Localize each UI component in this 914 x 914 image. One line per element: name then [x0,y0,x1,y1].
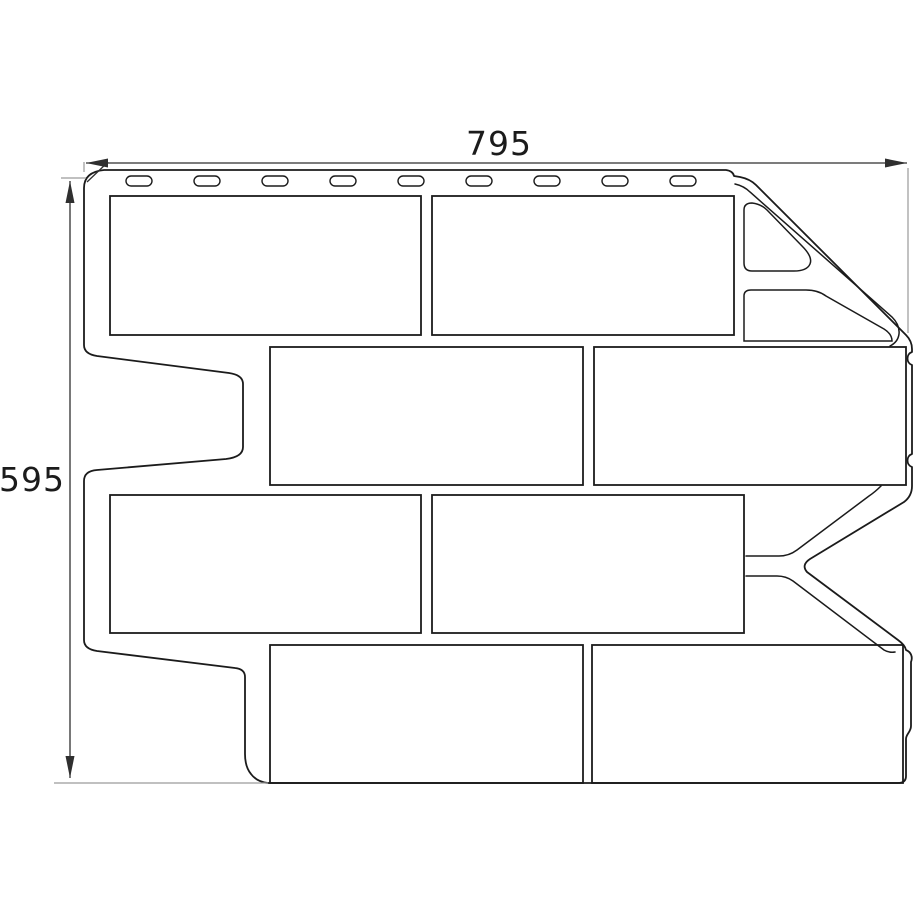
brick-row2-left [270,347,583,485]
nail-slot [330,176,356,186]
width-dimension-label: 795 [437,127,561,160]
width-arrow-right-icon [885,159,907,168]
brick-pattern [110,196,906,783]
brick-row3-right [432,495,744,633]
brick-row1-left [110,196,421,335]
nail-slot [670,176,696,186]
brick-row2-right [594,347,906,485]
nail-slot [398,176,424,186]
v-notch-lower-inner-edge [746,576,895,652]
width-dimension [84,159,908,334]
nail-slot [126,176,152,186]
top-right-cut [735,184,899,346]
height-arrow-down-icon [66,756,75,778]
width-arrow-left-icon [86,159,108,168]
brick-row4-right [592,645,903,783]
diagonal-inner-edge [735,184,899,346]
v-notch-upper-inner-edge [746,486,881,556]
panel-outer-contour [84,170,912,783]
height-arrow-up-icon [66,181,75,203]
nail-slot [466,176,492,186]
nail-slots [126,176,696,186]
brick-row3-left [110,495,421,633]
height-dimension-label: 595 [0,463,66,496]
nail-slot [262,176,288,186]
drawing-canvas: 795 595 [0,0,914,914]
nail-slot [194,176,220,186]
nail-slot [602,176,628,186]
panel-outline [84,170,912,783]
right-v-notch [746,486,895,652]
height-dimension [54,178,268,783]
nail-slot [534,176,560,186]
brick-row4-left [270,645,583,783]
brick-row1-right [432,196,734,335]
